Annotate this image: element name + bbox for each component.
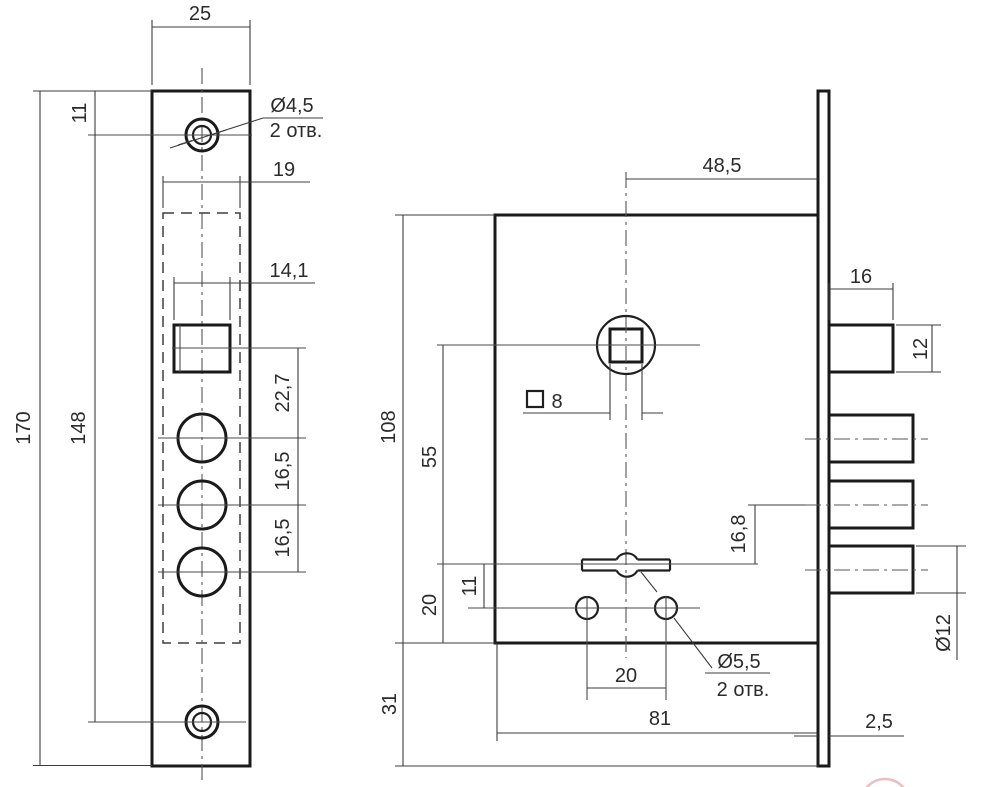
faceplate-outline	[152, 91, 250, 766]
dim-label-spindle-to-key: 55	[419, 446, 441, 468]
leader-lever	[641, 572, 657, 592]
dim-label-body-height: 108	[378, 410, 400, 443]
watermark-arc	[861, 779, 909, 787]
dim-label-faceplate-thickness: 2,5	[865, 711, 893, 733]
dim-label-overall-length: 170	[13, 411, 35, 444]
dim-label-bolt-to-key: 16,8	[728, 515, 750, 554]
dim-label-screw-dia: Ø4,5	[270, 95, 313, 117]
dim-label-plate-width: 25	[189, 3, 211, 25]
square-symbol-icon	[527, 391, 543, 407]
dim-label-spindle-square: 8	[551, 391, 562, 413]
dim-label-fix-hole-spacing: 20	[615, 665, 637, 687]
dim-label-spindle-to-faceplate: 48,5	[703, 155, 742, 177]
latch-bolt	[829, 325, 893, 372]
dim-label-body-to-plate-end: 31	[379, 693, 401, 715]
dim-label-body-depth: 81	[649, 708, 671, 730]
dim-label-screw-spacing: 148	[68, 411, 90, 444]
dim-label-latch-to-bolt: 22,7	[272, 374, 294, 413]
dim-label-top-hole-offset: 11	[69, 103, 91, 124]
dim-label-latch-opening: 14,1	[270, 260, 309, 282]
lock-body-outline	[495, 215, 818, 643]
lock-dimension-drawing: 25 11 170 148 Ø4,5 2 отв. 19 14,1 22,7	[0, 0, 1000, 787]
dim-label-bolt-pitch-lower: 16,5	[272, 519, 294, 558]
dim-label-slot-width: 19	[273, 159, 295, 181]
dim-label-screw-qty: 2 отв.	[270, 120, 323, 142]
dim-label-key-to-holes: 11	[459, 576, 481, 597]
dim-label-latch-width: 16	[850, 266, 872, 288]
dim-label-fix-hole-qty: 2 отв.	[717, 679, 770, 701]
dim-label-latch-height: 12	[910, 338, 932, 360]
dim-label-bolt-pitch-upper: 16,5	[272, 452, 294, 491]
dim-label-key-to-bottom: 20	[419, 594, 441, 616]
front-view: 25 11 170 148 Ø4,5 2 отв. 19 14,1 22,7	[13, 3, 323, 784]
dim-label-bolt-dia: Ø12	[933, 614, 955, 652]
dim-label-fix-hole-dia: Ø5,5	[717, 651, 760, 673]
technical-drawing-canvas: 25 11 170 148 Ø4,5 2 отв. 19 14,1 22,7	[0, 0, 1000, 787]
side-view: 48,5 16 12 8 108 55 20 11 31	[378, 91, 966, 766]
faceplate-edge	[818, 91, 829, 766]
